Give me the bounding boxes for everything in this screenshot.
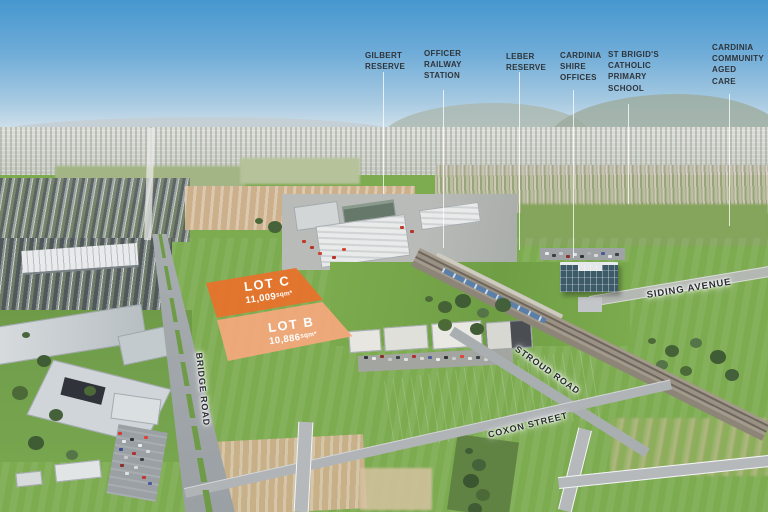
parked-cars-commercial (364, 356, 368, 359)
label-officer-station: OFFICER RAILWAY STATION (424, 48, 462, 82)
label-aged-care: CARDINIA COMMUNITY AGED CARE (712, 42, 764, 87)
shop-building-4 (485, 319, 533, 350)
mid-tree-cluster (255, 218, 263, 224)
vacant-dirt-center (360, 468, 432, 510)
mid-paddock-center (240, 158, 360, 184)
leader-line-shire-offices (573, 90, 574, 258)
parked-cars-office (545, 252, 549, 255)
red-trucks (302, 240, 306, 243)
railway-trees (425, 296, 433, 302)
shop-building-1 (348, 329, 381, 353)
leader-line-gilbert-reserve (383, 72, 384, 194)
mid-rooftops-left (0, 178, 190, 242)
office-glass-grid (560, 265, 618, 292)
parked-cars-school (118, 432, 122, 435)
leader-line-leber-reserve (519, 72, 520, 250)
aerial-photo: LOT C 11,009sqm* LOT B 10,886sqm* GILBER… (0, 0, 768, 512)
leader-line-officer-station (443, 90, 444, 248)
leader-line-aged-care (729, 94, 730, 226)
shop-building-2 (383, 324, 429, 351)
shed-small (15, 471, 42, 488)
label-leber-reserve: LEBER RESERVE (506, 51, 546, 73)
label-st-brigids: ST BRIGID'S CATHOLIC PRIMARY SCHOOL (608, 49, 659, 94)
office-parking (540, 248, 625, 260)
leader-line-st-brigids (628, 104, 629, 204)
creek-trees (465, 448, 473, 454)
label-shire-offices: CARDINIA SHIRE OFFICES (560, 50, 602, 84)
right-field-trees (648, 338, 656, 344)
school-trees (22, 332, 30, 338)
cardinia-offices-building (560, 262, 618, 292)
creek-vegetation (447, 434, 519, 512)
rail-overpass (578, 297, 602, 312)
label-gilbert-reserve: GILBERT RESERVE (365, 50, 405, 72)
